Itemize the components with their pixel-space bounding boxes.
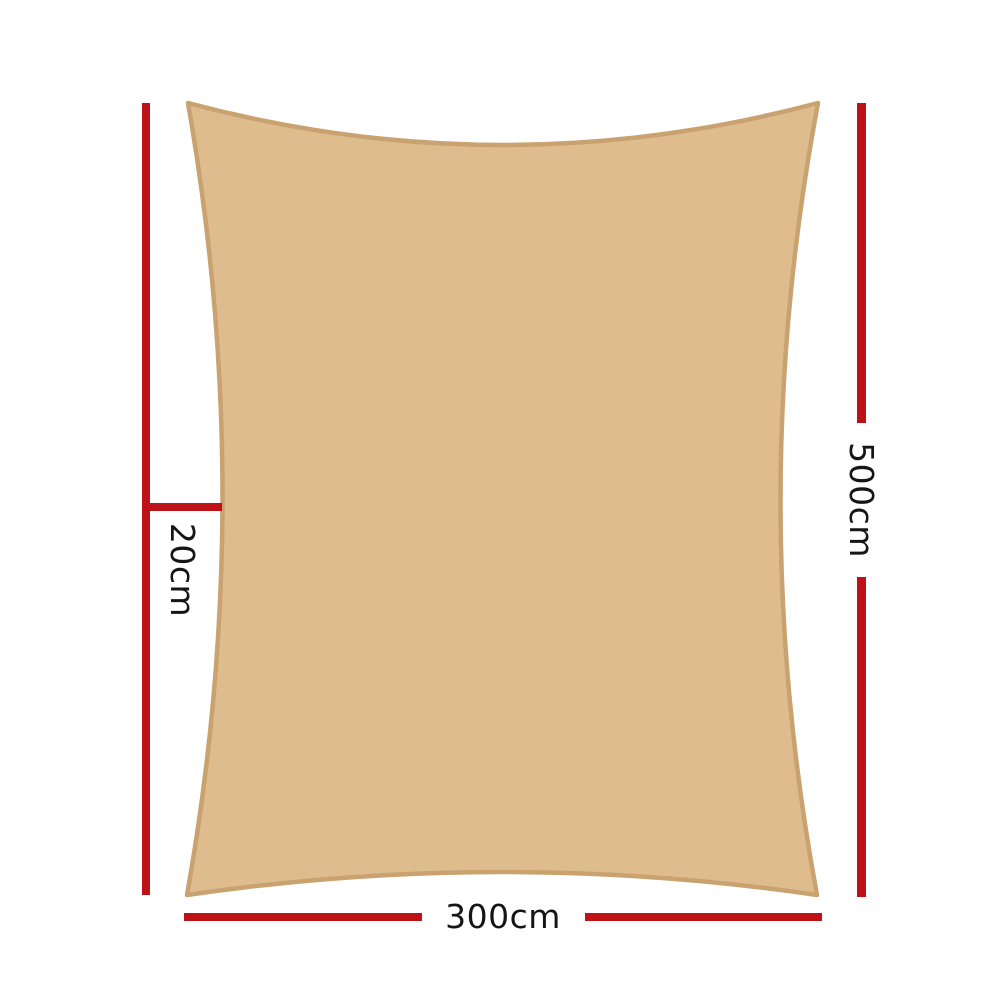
sail-fabric-fill xyxy=(187,103,818,895)
height-dimension-line-left xyxy=(142,103,150,895)
height-dimension-label: 500cm xyxy=(841,430,881,570)
height-dimension-line-lower xyxy=(857,577,866,897)
diagram-canvas: 20cm 500cm 300cm xyxy=(0,0,1000,1000)
height-dimension-line-upper xyxy=(857,103,866,423)
curve-depth-label: 20cm xyxy=(162,510,202,630)
width-dimension-line-right xyxy=(585,913,822,921)
width-dimension-label: 300cm xyxy=(423,897,583,937)
width-dimension-line-left xyxy=(184,913,422,921)
